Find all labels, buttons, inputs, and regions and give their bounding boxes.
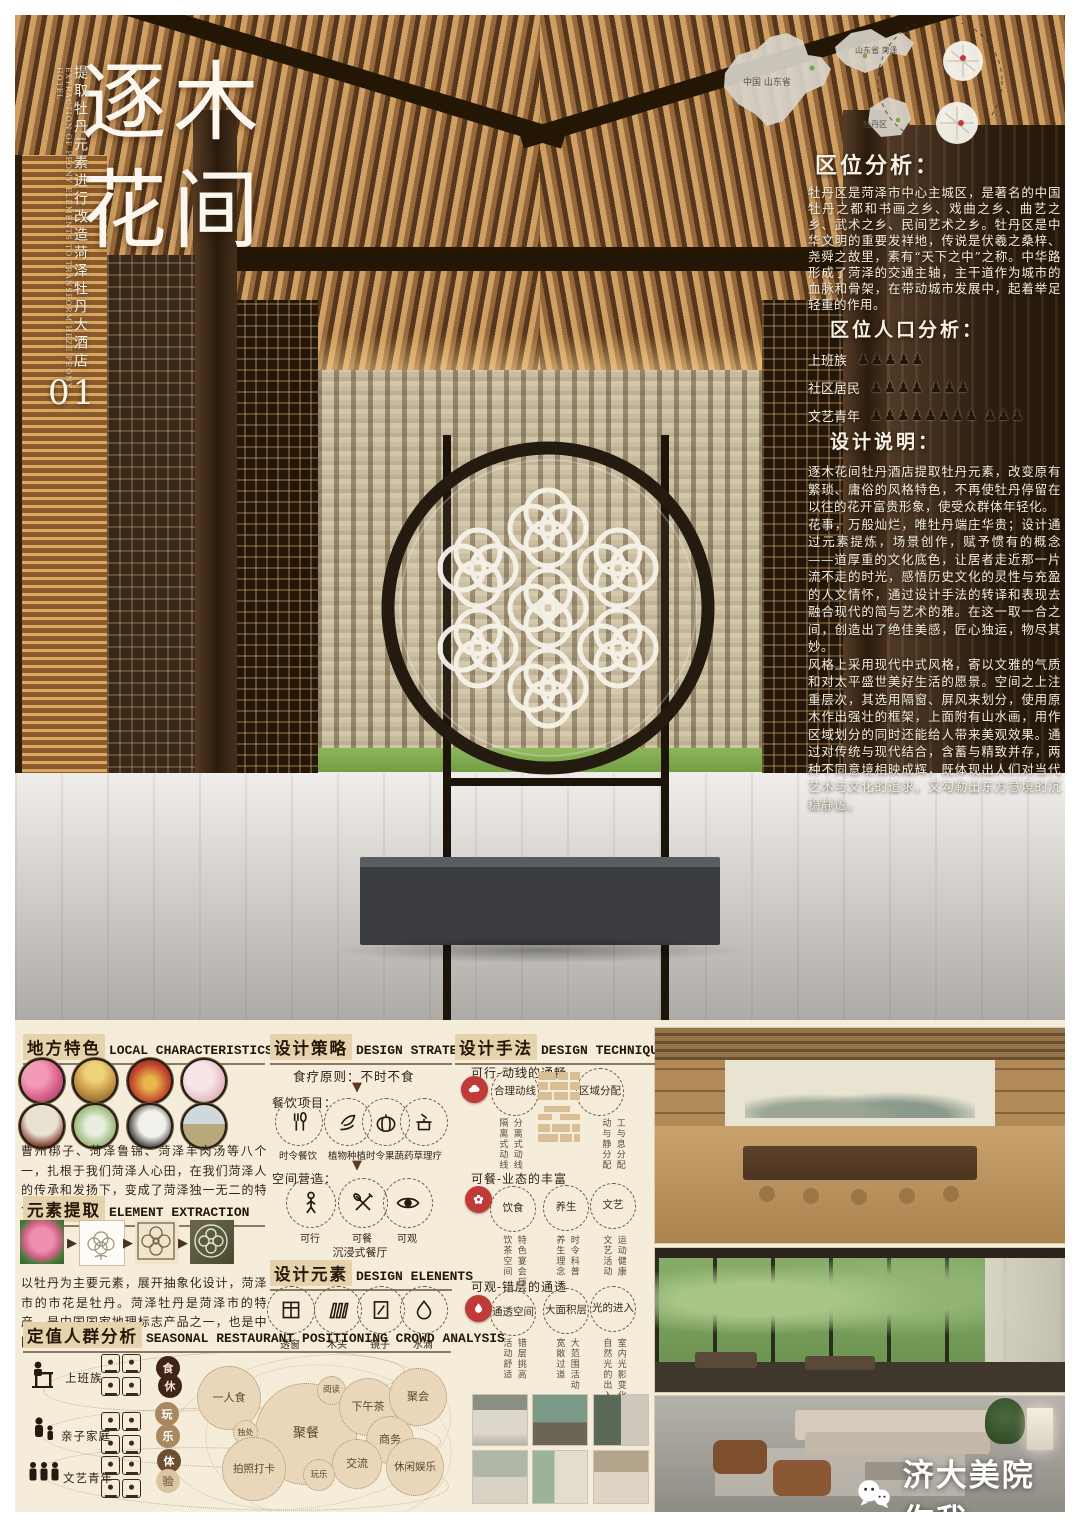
svg-text:中国 山东省: 中国 山东省	[743, 76, 791, 88]
flower-icon	[470, 1191, 487, 1208]
crowd-bubble: 玩乐	[303, 1459, 335, 1491]
title-char: 花	[81, 165, 173, 273]
peony-sketch-icon	[80, 1221, 122, 1263]
cloud-icon	[466, 1081, 483, 1098]
page-index: 01	[48, 373, 97, 413]
section-title-cn: 定值人群分析	[23, 1322, 142, 1348]
technique-notes: 动与静分配 工与息分配	[600, 1118, 625, 1171]
population-row: 上班族 ♟♟♟♟♟	[808, 350, 925, 369]
activity-icons-group	[101, 1354, 139, 1396]
element-circle	[314, 1286, 362, 1334]
space-circle	[286, 1178, 336, 1228]
technique-note: 运动健康	[615, 1235, 625, 1277]
element-circle	[267, 1286, 315, 1334]
activity-icon	[122, 1479, 141, 1498]
technique-note: 养生理念	[554, 1235, 564, 1277]
technique-circle: 光的进入	[590, 1286, 636, 1332]
plant	[985, 1398, 1025, 1444]
tea-room-stool	[943, 1186, 959, 1202]
section-title-cn: 设计策略	[270, 1034, 352, 1060]
tea-room-long-table	[743, 1146, 977, 1180]
wood-icon	[325, 1297, 351, 1323]
photo-festival-food	[127, 1058, 173, 1104]
design-technique-header: 设计手法DESIGN TECHNIQUE	[455, 1034, 660, 1065]
crowd-bubble: 拍照打卡	[222, 1437, 286, 1501]
person-icons: ♟♟♟♟♟♟♟♟ ♟♟♟	[870, 408, 1025, 424]
activity-icons-group	[101, 1456, 139, 1498]
subtitle-english: EXTRACTION OF PEONY ELEMENTS TO TRANSFOR…	[55, 67, 73, 402]
technique-note: 大范围活动	[568, 1338, 578, 1391]
tea-room-mural-wall	[725, 1060, 995, 1126]
utensils-icon	[286, 1109, 312, 1135]
technique-circle: 大面积层	[543, 1288, 589, 1334]
tea-room-ceiling	[655, 1028, 1065, 1060]
element-label: 透窗	[263, 1336, 317, 1351]
technique-notes: 隔离式动线 分离式动线	[497, 1118, 522, 1171]
technique-notes: 活动舒适 错层挑高	[501, 1338, 526, 1380]
eye-icon	[394, 1189, 422, 1217]
space-circle	[383, 1178, 433, 1228]
activity-icon	[122, 1435, 141, 1454]
description-paragraph: 逐木花间牡丹酒店提取牡丹元素，改变原有繁琐、庸俗的风格特色，不再使牡丹停留在以往…	[808, 463, 1061, 516]
china-map: 中国 山东省	[724, 33, 831, 126]
interior-thumbnail	[594, 1451, 648, 1503]
lobby-beam-horizontal	[195, 247, 885, 271]
bench-silhouette	[695, 1352, 757, 1368]
element-circle	[400, 1286, 448, 1334]
family-icon	[31, 1416, 57, 1446]
technique-badge	[465, 1295, 492, 1322]
extraction-step-screen-application	[190, 1220, 234, 1264]
population-row-label: 上班族	[808, 350, 847, 369]
space-label: 可行	[284, 1230, 336, 1245]
extraction-step-abstract-pattern	[135, 1220, 179, 1264]
activity-icon	[101, 1377, 120, 1396]
technique-circle: 通透空间	[490, 1290, 536, 1336]
activity-icon	[101, 1354, 120, 1373]
element-label: 水滴	[396, 1336, 450, 1351]
activity-icon	[122, 1377, 141, 1396]
extraction-step-peony-photo	[20, 1220, 64, 1264]
technique-note: 隔离式动线	[497, 1118, 507, 1171]
interior-thumbnail	[473, 1451, 527, 1503]
arrow-right-icon: ▶	[123, 1236, 133, 1251]
technique-circle: 饮食	[490, 1186, 536, 1232]
cutlery-icon	[349, 1189, 377, 1217]
keyword-circle: 玩	[155, 1402, 179, 1426]
activity-icons-group	[101, 1412, 139, 1454]
section-title-cn: 设计手法	[455, 1034, 537, 1060]
crowd-bubble: 休闲娱乐	[386, 1438, 444, 1496]
youth-group-icon	[27, 1460, 61, 1488]
section-title-en: LOCAL CHARACTERISTICS	[109, 1043, 273, 1058]
catering-circle	[275, 1098, 323, 1146]
lobby-render: 逐 木 花 间 提取牡丹元素进行改造菏泽牡丹大酒店 EXTRACTION OF …	[15, 15, 1065, 1020]
quatrefoil-pattern-icon	[135, 1220, 177, 1262]
tea-room-floor	[655, 1126, 1065, 1243]
arrow-right-icon: ▶	[178, 1236, 188, 1251]
tea-room-stool	[803, 1188, 819, 1204]
activity-icon	[101, 1479, 120, 1498]
activity-icon	[101, 1456, 120, 1475]
waterdrop-icon	[411, 1297, 437, 1323]
svg-text:牡丹区: 牡丹区	[863, 119, 887, 129]
technique-notes: 自然光的出入 室内光影变化	[601, 1338, 626, 1401]
interior-thumbnail	[533, 1451, 587, 1503]
technique-note: 文艺活动	[601, 1235, 611, 1277]
design-description-body: 逐木花间牡丹酒店提取牡丹元素，改变原有繁琐、庸俗的风格特色，不再使牡丹停留在以往…	[808, 463, 1061, 813]
poster-title: 逐 木 花 间	[81, 57, 269, 273]
person-icons: ♟♟♟♟ ♟♟♟	[870, 380, 970, 396]
technique-note: 工与息分配	[614, 1118, 624, 1171]
shandong-map: 山东省 菏泽	[835, 29, 914, 73]
photo-peony	[19, 1058, 65, 1104]
tea-room-stool	[759, 1186, 775, 1202]
technique-note: 分离式动线	[511, 1118, 521, 1171]
population-row-label: 文艺青年	[808, 406, 860, 425]
section-title-en: DESIGN TECHNIQUE	[541, 1043, 666, 1058]
map-callout-2	[936, 102, 978, 144]
logo-text: 济大美院你我	[903, 1450, 1065, 1512]
crowd-bubble: 一人食	[197, 1366, 261, 1430]
technique-circle: 区域分配	[576, 1068, 624, 1116]
technique-circle: 合理动线	[491, 1068, 539, 1116]
activity-icon	[122, 1412, 141, 1431]
mural-mountains	[745, 1078, 975, 1118]
floor-lamp	[1027, 1408, 1053, 1450]
window-icon	[278, 1297, 304, 1323]
technique-circle: 养生	[543, 1185, 589, 1231]
leather-chair	[713, 1440, 767, 1474]
section-title-cn: 元素提取	[23, 1196, 105, 1222]
technique-note: 室内光影变化	[615, 1338, 625, 1401]
interior-thumbnail	[594, 1395, 648, 1445]
svg-text:山东省 菏泽: 山东省 菏泽	[855, 45, 898, 55]
design-strategy-header: 设计策略DESIGN STRATEGY	[270, 1034, 452, 1065]
leather-chair	[773, 1460, 831, 1496]
screen-pattern-icon	[190, 1220, 232, 1262]
location-maps: 中国 山东省 山东省 菏泽 牡丹区	[705, 23, 1050, 163]
floor-plan-blocks	[538, 1072, 580, 1146]
section-title-en: DESIGN ELENENTS	[356, 1269, 473, 1284]
element-circle	[357, 1286, 405, 1334]
arrow-down-icon: ▼	[352, 1080, 362, 1095]
technique-sub-title: 可餐-业态的丰富	[471, 1170, 567, 1187]
leaves-icon	[335, 1109, 361, 1135]
catering-label: 药草理疗	[396, 1148, 450, 1162]
activity-icon	[101, 1435, 120, 1454]
catering-circle	[400, 1098, 448, 1146]
design-description-title: 设计说明：	[830, 427, 940, 454]
population-row: 文艺青年 ♟♟♟♟♟♟♟♟ ♟♟♟	[808, 406, 1025, 425]
photo-opera-figure	[72, 1058, 118, 1104]
arrow-down-icon: ▼	[352, 1158, 362, 1173]
section-title-cn: 设计元素	[270, 1260, 352, 1286]
population-row-label: 社区居民	[808, 378, 860, 397]
activity-icon	[122, 1354, 141, 1373]
technique-note: 活动舒适	[501, 1338, 511, 1380]
tea-room-render	[655, 1028, 1065, 1243]
keyword-circle: 验	[156, 1469, 180, 1493]
population-analysis-title: 区位人口分析：	[830, 315, 984, 342]
activity-icon	[101, 1412, 120, 1431]
garden-window-render	[655, 1248, 1065, 1392]
technique-note: 动与静分配	[600, 1118, 610, 1171]
activity-icon	[122, 1456, 141, 1475]
lounge-render: 济大美院你我	[655, 1396, 1065, 1512]
branding-logo: 济大美院你我	[855, 1450, 1065, 1512]
tea-room-stool	[851, 1189, 867, 1205]
technique-badge	[465, 1186, 492, 1213]
technique-notes: 养生理念 时令科普	[554, 1235, 579, 1277]
office-worker-icon	[29, 1360, 55, 1388]
technique-note: 错层挑高	[515, 1338, 525, 1380]
crowd-bubble: 交流	[332, 1439, 382, 1489]
title-char: 逐	[81, 57, 173, 165]
crowd-group-label: 上班族	[65, 1370, 103, 1386]
space-label: 可观	[381, 1230, 433, 1245]
bench-silhouette	[805, 1356, 875, 1370]
technique-note: 宽敞过道	[554, 1338, 564, 1391]
location-analysis-body: 牡丹区是菏泽市中心主城区，是著名的中国牡丹之都和书画之乡、戏曲之乡、曲艺之乡、武…	[808, 185, 1061, 313]
desk-shadow	[335, 937, 745, 963]
space-circle	[338, 1178, 388, 1228]
analysis-panel: 地方特色LOCAL CHARACTERISTICS 曹州梆子、菏泽鲁锦、菏泽羊肉…	[15, 1020, 1065, 1512]
person-icon	[297, 1189, 325, 1217]
catering-label: 时令餐饮	[271, 1148, 325, 1162]
technique-notes: 文艺活动 运动健康	[601, 1235, 626, 1277]
description-paragraph: 风格上采用现代中式风格，寄以文雅的气质和对太平盛世美好生活的愿景。空间之上注重层…	[808, 656, 1061, 814]
description-paragraph: 花事，万般灿烂，唯牡丹端庄华贵；设计通过元素提炼，场景创作，赋予惯有的概念——道…	[808, 516, 1061, 656]
sheer-curtain	[985, 1258, 1065, 1362]
peony-moon-gate-screen	[373, 433, 723, 783]
interior-thumbnail	[533, 1395, 587, 1445]
photo-pale-peony	[181, 1058, 227, 1104]
drop-icon	[470, 1300, 487, 1317]
interior-thumbnail	[473, 1395, 527, 1445]
section-title-en: ELEMENT EXTRACTION	[109, 1205, 249, 1220]
population-row: 社区居民 ♟♟♟♟ ♟♟♟	[808, 378, 970, 397]
reception-desk	[360, 857, 720, 945]
keyword-circle: 乐	[156, 1424, 180, 1448]
technique-notes: 宽敞过道 大范围活动	[554, 1338, 579, 1391]
design-poster: 逐 木 花 间 提取牡丹元素进行改造菏泽牡丹大酒店 EXTRACTION OF …	[0, 0, 1080, 1527]
title-char: 间	[173, 165, 265, 273]
location-analysis-title: 区位分析：	[815, 148, 940, 180]
pumpkin-icon	[373, 1109, 399, 1135]
technique-note: 时令科普	[568, 1235, 578, 1277]
keyword-circle: 休	[158, 1374, 182, 1398]
extraction-step-line-sketch	[79, 1220, 125, 1266]
arrow-right-icon: ▶	[67, 1236, 77, 1251]
herb-pot-icon	[411, 1109, 437, 1135]
window-frame-top	[655, 1248, 1065, 1258]
section-title-cn: 地方特色	[23, 1034, 105, 1060]
person-icons: ♟♟♟♟♟	[857, 352, 925, 368]
technique-badge	[461, 1076, 488, 1103]
wechat-icon	[855, 1474, 893, 1512]
technique-note: 自然光的出入	[601, 1338, 611, 1401]
immersive-restaurant-note: 沉浸式餐厅	[315, 1244, 405, 1260]
tea-room-stool	[899, 1188, 915, 1204]
mirror-icon	[368, 1297, 394, 1323]
technique-circle: 文艺	[590, 1183, 636, 1229]
title-char: 木	[173, 57, 265, 165]
subtitle-chinese: 提取牡丹元素进行改造菏泽牡丹大酒店	[70, 65, 90, 410]
map-callout-1	[943, 41, 983, 81]
